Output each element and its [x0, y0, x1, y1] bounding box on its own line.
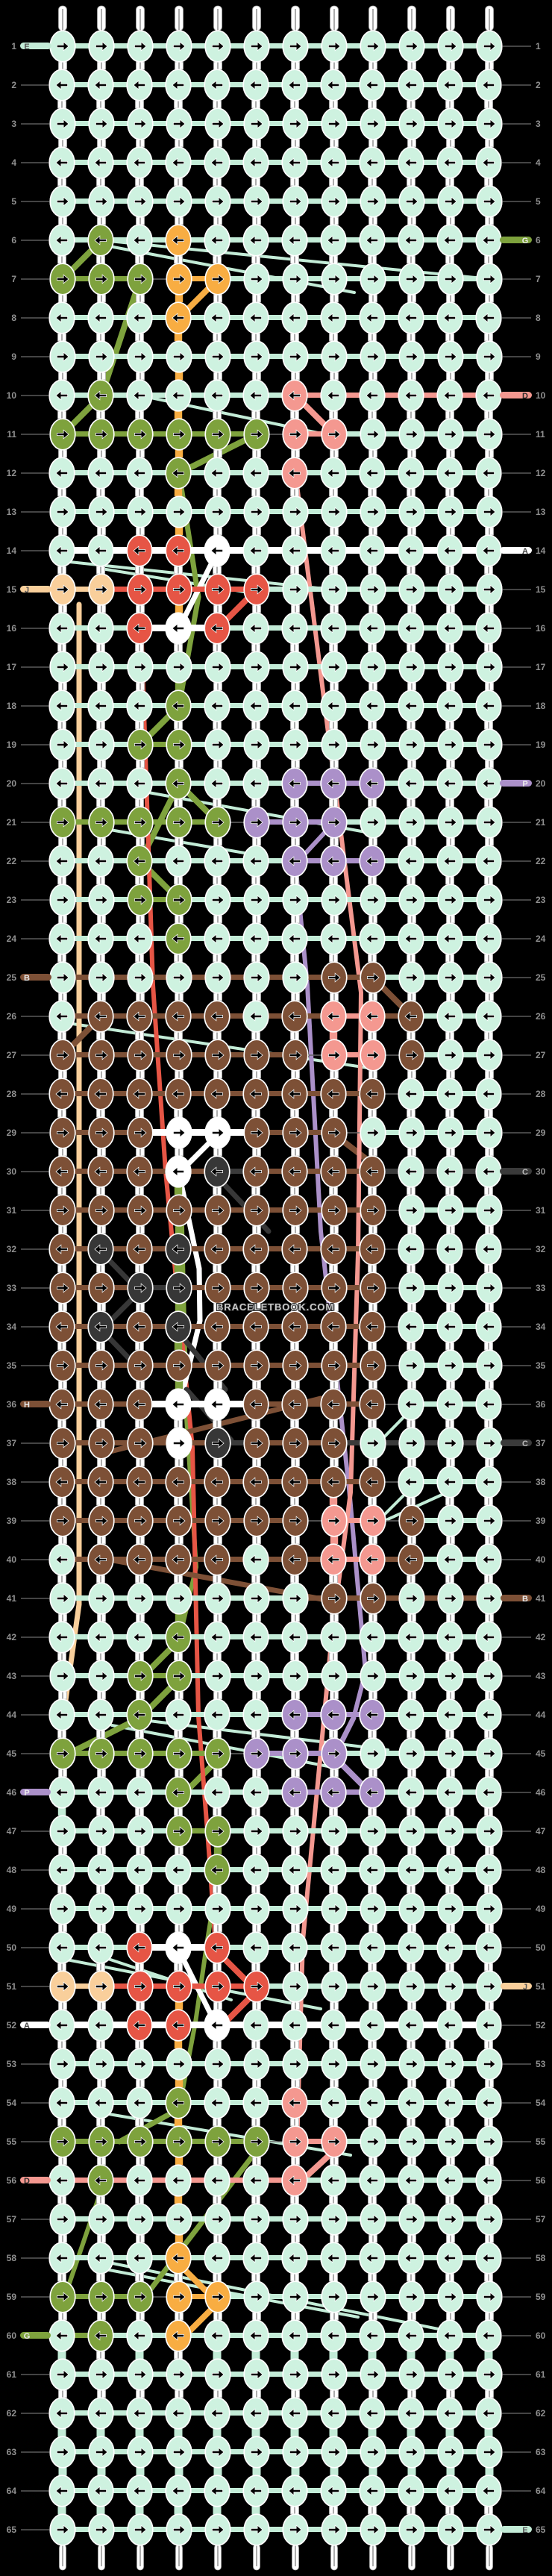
- svg-text:27: 27: [7, 1050, 17, 1060]
- svg-text:17: 17: [7, 662, 17, 672]
- svg-text:6: 6: [11, 235, 16, 246]
- svg-text:30: 30: [7, 1166, 17, 1177]
- svg-text:41: 41: [7, 1593, 17, 1604]
- svg-text:15: 15: [7, 584, 17, 595]
- svg-text:44: 44: [7, 1710, 17, 1720]
- svg-text:2: 2: [536, 80, 541, 90]
- svg-text:E: E: [24, 43, 29, 51]
- svg-text:61: 61: [7, 2369, 17, 2380]
- svg-text:24: 24: [7, 934, 17, 944]
- svg-text:20: 20: [7, 778, 17, 789]
- svg-text:23: 23: [7, 895, 17, 905]
- svg-text:49: 49: [7, 1904, 17, 1914]
- svg-text:13: 13: [536, 507, 546, 517]
- svg-text:G: G: [24, 2332, 31, 2341]
- svg-text:37: 37: [536, 1438, 546, 1448]
- svg-text:16: 16: [7, 623, 17, 634]
- svg-text:53: 53: [7, 2059, 17, 2069]
- svg-text:4: 4: [11, 157, 16, 168]
- svg-text:17: 17: [536, 662, 546, 672]
- svg-text:39: 39: [7, 1516, 17, 1526]
- svg-text:57: 57: [536, 2214, 546, 2225]
- svg-text:34: 34: [7, 1322, 17, 1332]
- svg-text:52: 52: [536, 2020, 546, 2031]
- svg-text:38: 38: [536, 1477, 546, 1487]
- svg-text:42: 42: [7, 1632, 17, 1642]
- svg-text:15: 15: [536, 584, 546, 595]
- svg-text:39: 39: [536, 1516, 546, 1526]
- svg-text:3: 3: [536, 119, 541, 129]
- svg-text:48: 48: [7, 1865, 17, 1875]
- svg-text:48: 48: [536, 1865, 546, 1875]
- svg-text:28: 28: [7, 1089, 17, 1099]
- svg-text:54: 54: [7, 2098, 17, 2108]
- svg-text:44: 44: [536, 1710, 546, 1720]
- svg-text:11: 11: [7, 429, 16, 440]
- svg-text:BRACELETBOOK.COM: BRACELETBOOK.COM: [216, 1301, 334, 1313]
- svg-text:C: C: [522, 1439, 528, 1448]
- svg-text:23: 23: [536, 895, 546, 905]
- svg-text:27: 27: [536, 1050, 546, 1060]
- svg-text:59: 59: [7, 2292, 17, 2302]
- svg-text:8: 8: [11, 313, 16, 323]
- svg-text:A: A: [522, 547, 528, 556]
- svg-text:H: H: [24, 1401, 30, 1410]
- svg-text:16: 16: [536, 623, 546, 634]
- svg-text:34: 34: [536, 1322, 546, 1332]
- svg-text:40: 40: [536, 1554, 546, 1565]
- svg-text:E: E: [522, 2526, 527, 2535]
- svg-text:J: J: [25, 586, 29, 595]
- svg-text:65: 65: [7, 2525, 17, 2535]
- svg-text:47: 47: [7, 1826, 17, 1836]
- svg-text:58: 58: [7, 2253, 17, 2263]
- svg-text:36: 36: [536, 1399, 546, 1410]
- svg-text:14: 14: [536, 545, 546, 556]
- svg-text:37: 37: [7, 1438, 17, 1448]
- svg-text:60: 60: [7, 2330, 17, 2341]
- svg-text:B: B: [24, 974, 30, 983]
- svg-text:P: P: [522, 780, 527, 789]
- svg-text:56: 56: [536, 2175, 546, 2186]
- svg-text:32: 32: [7, 1244, 17, 1254]
- svg-text:6: 6: [536, 235, 541, 246]
- svg-text:2: 2: [11, 80, 16, 90]
- svg-text:1: 1: [536, 41, 541, 51]
- svg-text:22: 22: [536, 856, 546, 866]
- svg-text:10: 10: [7, 390, 17, 401]
- svg-text:49: 49: [536, 1904, 546, 1914]
- svg-text:62: 62: [536, 2408, 546, 2419]
- svg-text:B: B: [522, 1595, 528, 1604]
- svg-text:41: 41: [536, 1593, 546, 1604]
- svg-text:30: 30: [536, 1166, 546, 1177]
- svg-text:18: 18: [7, 701, 17, 711]
- svg-text:59: 59: [536, 2292, 546, 2302]
- svg-text:45: 45: [536, 1748, 546, 1759]
- svg-text:24: 24: [536, 934, 546, 944]
- svg-text:C: C: [522, 1168, 528, 1177]
- svg-text:3: 3: [11, 119, 16, 129]
- svg-text:51: 51: [7, 1981, 17, 1992]
- svg-text:18: 18: [536, 701, 546, 711]
- svg-text:55: 55: [7, 2136, 17, 2147]
- svg-text:56: 56: [7, 2175, 17, 2186]
- svg-text:10: 10: [536, 390, 546, 401]
- svg-text:33: 33: [7, 1283, 17, 1293]
- svg-text:53: 53: [536, 2059, 546, 2069]
- svg-text:54: 54: [536, 2098, 546, 2108]
- svg-text:J: J: [523, 1983, 527, 1992]
- svg-text:46: 46: [7, 1787, 17, 1798]
- svg-text:26: 26: [7, 1011, 17, 1022]
- svg-text:G: G: [522, 237, 529, 246]
- svg-text:D: D: [24, 2177, 30, 2186]
- svg-text:29: 29: [7, 1128, 17, 1138]
- svg-text:64: 64: [7, 2486, 17, 2496]
- svg-text:51: 51: [536, 1981, 546, 1992]
- svg-text:60: 60: [536, 2330, 546, 2341]
- svg-text:55: 55: [536, 2136, 546, 2147]
- svg-text:25: 25: [536, 972, 546, 983]
- svg-text:32: 32: [536, 1244, 546, 1254]
- svg-text:35: 35: [7, 1360, 17, 1371]
- svg-text:31: 31: [7, 1205, 17, 1216]
- svg-text:21: 21: [7, 817, 17, 828]
- svg-text:7: 7: [536, 274, 541, 284]
- svg-text:9: 9: [11, 351, 16, 362]
- svg-text:50: 50: [536, 1942, 546, 1953]
- svg-text:22: 22: [7, 856, 17, 866]
- svg-text:12: 12: [536, 468, 546, 478]
- svg-text:50: 50: [7, 1942, 17, 1953]
- svg-text:4: 4: [536, 157, 541, 168]
- svg-text:28: 28: [536, 1089, 546, 1099]
- svg-text:31: 31: [536, 1205, 546, 1216]
- svg-text:21: 21: [536, 817, 546, 828]
- svg-text:8: 8: [536, 313, 541, 323]
- svg-text:46: 46: [536, 1787, 546, 1798]
- svg-text:45: 45: [7, 1748, 17, 1759]
- svg-text:65: 65: [536, 2525, 546, 2535]
- svg-text:43: 43: [7, 1671, 17, 1681]
- svg-text:25: 25: [7, 972, 17, 983]
- svg-text:36: 36: [7, 1399, 17, 1410]
- svg-text:40: 40: [7, 1554, 17, 1565]
- svg-text:26: 26: [536, 1011, 546, 1022]
- svg-text:42: 42: [536, 1632, 546, 1642]
- svg-text:47: 47: [536, 1826, 546, 1836]
- svg-text:63: 63: [536, 2447, 546, 2457]
- svg-text:62: 62: [7, 2408, 17, 2419]
- svg-text:9: 9: [536, 351, 541, 362]
- svg-text:11: 11: [536, 429, 545, 440]
- svg-text:38: 38: [7, 1477, 17, 1487]
- svg-text:52: 52: [7, 2020, 17, 2031]
- svg-text:43: 43: [536, 1671, 546, 1681]
- svg-text:7: 7: [11, 274, 16, 284]
- svg-text:61: 61: [536, 2369, 546, 2380]
- svg-text:63: 63: [7, 2447, 17, 2457]
- svg-text:33: 33: [536, 1283, 546, 1293]
- svg-text:A: A: [24, 2022, 30, 2031]
- svg-text:58: 58: [536, 2253, 546, 2263]
- svg-text:19: 19: [536, 740, 546, 750]
- svg-text:64: 64: [536, 2486, 546, 2496]
- svg-text:5: 5: [11, 196, 16, 207]
- svg-text:5: 5: [536, 196, 541, 207]
- svg-text:57: 57: [7, 2214, 17, 2225]
- svg-text:D: D: [522, 392, 528, 401]
- svg-text:29: 29: [536, 1128, 546, 1138]
- svg-text:13: 13: [7, 507, 17, 517]
- svg-text:20: 20: [536, 778, 546, 789]
- svg-text:1: 1: [11, 41, 16, 51]
- svg-text:35: 35: [536, 1360, 546, 1371]
- svg-text:14: 14: [7, 545, 17, 556]
- svg-text:12: 12: [7, 468, 17, 478]
- svg-text:19: 19: [7, 740, 17, 750]
- svg-text:P: P: [24, 1789, 29, 1798]
